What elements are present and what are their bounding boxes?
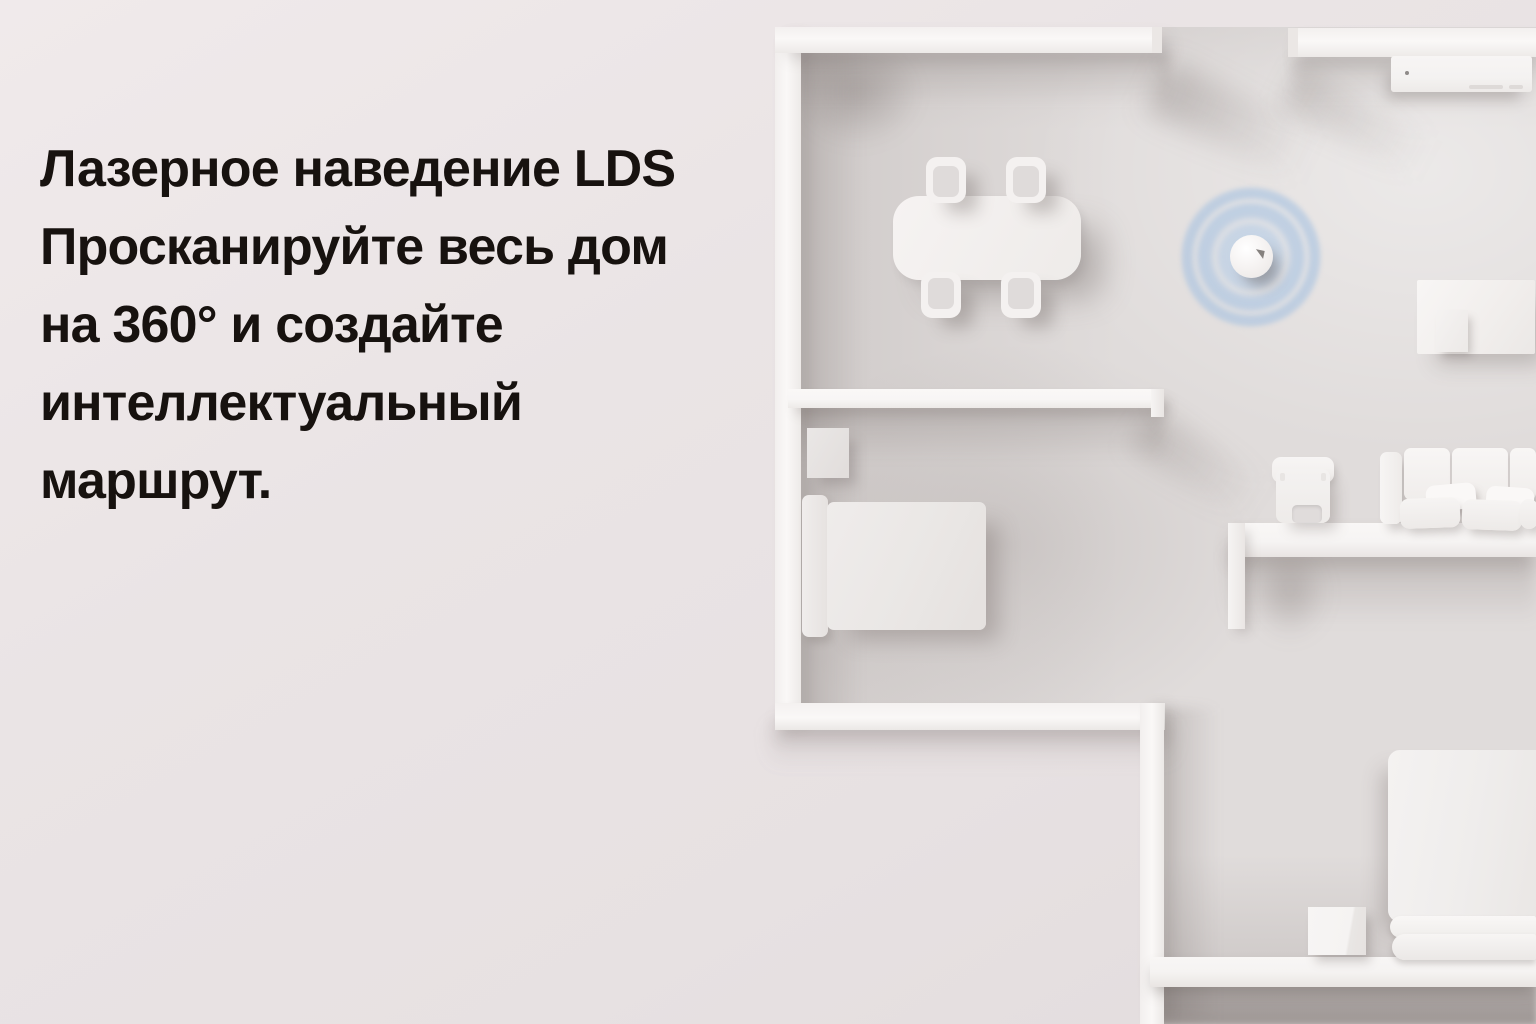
storage-cube [1308,907,1366,955]
double-bed [1388,750,1536,962]
dining-chair [921,272,961,318]
side-table [1417,280,1535,354]
dining-table [893,196,1081,280]
wall-bedroom-left-return [1228,523,1245,629]
sofa-seat-cushion [1399,497,1460,529]
sofa-seat-cushion [1461,499,1522,531]
dining-chair [926,157,966,203]
armchair-knob [1280,473,1285,481]
headline-line: на 360° и создайте [40,286,675,364]
bed-headboard [802,495,828,637]
armchair-knob [1321,473,1326,481]
wall-left [775,27,801,722]
dining-chair [1006,157,1046,203]
headline-line: интеллектуальный [40,364,675,442]
single-bed [802,493,986,639]
wall-top-left [775,27,1162,53]
tv-notch [1469,85,1503,89]
bed-mattress [1388,750,1536,922]
wall-bottom-left-horizontal [775,703,1165,730]
wall-shadow [772,727,1172,765]
wall-end-cap [1151,389,1164,417]
headline: Лазерное наведение LDS Просканируйте вес… [40,130,675,520]
tv-led-dot [1405,71,1409,75]
sofa [1380,444,1536,530]
blanket-fold [1392,934,1536,960]
tv-notch [1509,85,1523,89]
tv-console [1391,56,1532,92]
banner: Лазерное наведение LDS Просканируйте вес… [0,0,1536,1024]
sofa-armrest [1380,452,1402,524]
bed-mattress [827,502,986,630]
small-box [1436,310,1468,352]
headline-line: Лазерное наведение LDS [40,130,675,208]
robot-vacuum [1230,235,1273,278]
headline-line: маршрут. [40,442,675,520]
armchair-opening [1292,505,1322,523]
bedside-cabinet [807,428,849,478]
headline-line: Просканируйте весь дом [40,208,675,286]
dining-chair [1001,272,1041,318]
robot-logo-icon [1254,249,1264,259]
wall-divider-middle [788,389,1164,408]
wall-top-right [1288,28,1536,57]
sofa-seat-cushion [1520,499,1536,529]
armchair [1272,457,1334,525]
